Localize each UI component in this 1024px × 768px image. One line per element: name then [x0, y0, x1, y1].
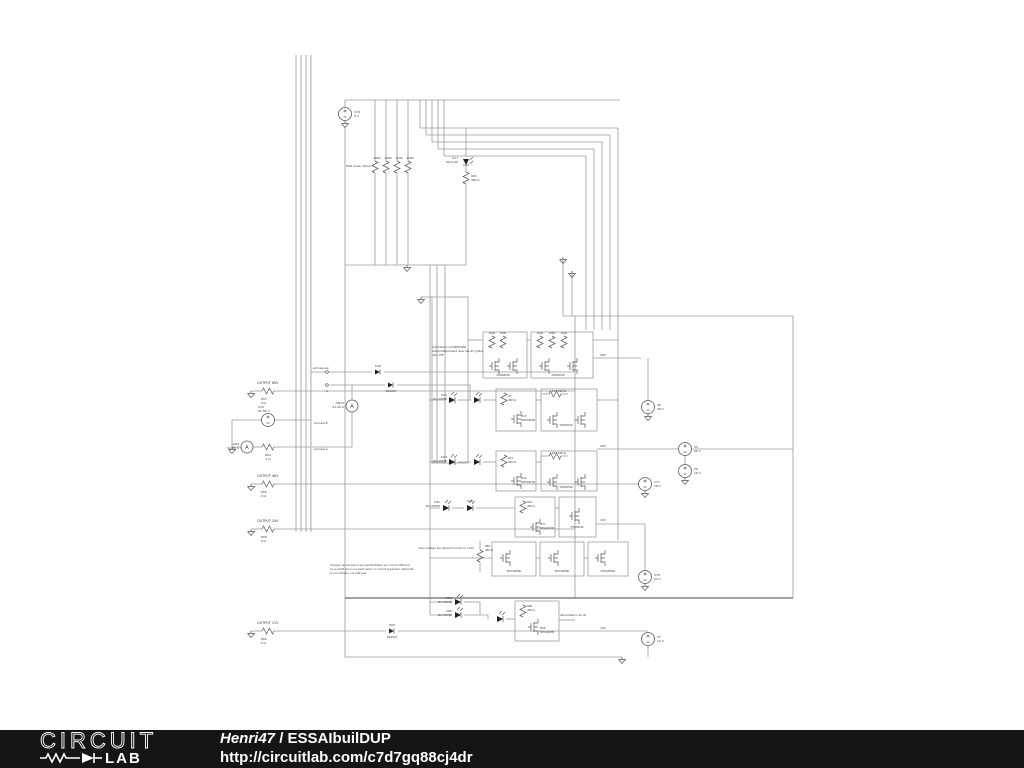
- terminal: [326, 384, 329, 387]
- schematic-label: 200Ω: [385, 156, 392, 160]
- project-author[interactable]: Henri47: [220, 730, 275, 747]
- schematic-label: R74 500 Ω: [552, 389, 566, 393]
- component-box: [496, 389, 536, 431]
- mosfet: [511, 411, 521, 427]
- schematic-label: arrivée A: [314, 447, 329, 451]
- source-value: 18 V: [654, 484, 662, 488]
- mosfet: [575, 412, 585, 428]
- resistor: [394, 161, 400, 173]
- schematic-label: NTR4003N: [521, 418, 535, 422]
- schematic-label: 0 Ω: [261, 401, 267, 405]
- led: [443, 505, 449, 511]
- schematic-label: STP16NF06L: [555, 570, 571, 573]
- schematic-label: 1N4007: [387, 635, 398, 639]
- ground-icon: [404, 265, 411, 272]
- led-arrows: [476, 454, 482, 458]
- led: [467, 505, 473, 511]
- schematic-label: OUTPUT 48V: [257, 474, 279, 478]
- schematic-label: 48V: [600, 444, 607, 448]
- ground-icon: [642, 491, 649, 498]
- schematic-label: NTR4003N: [540, 630, 554, 634]
- schematic-label: NTR4003N: [521, 480, 535, 484]
- schematic-label: 200Ω: [489, 332, 496, 335]
- schematic-label: OUTPUT 24V: [257, 519, 279, 523]
- schematic-label: 200Ω: [374, 156, 381, 160]
- ground-icon: [248, 631, 255, 638]
- resistor: [262, 628, 274, 634]
- schematic-label: ESD down 10mA: [346, 164, 372, 168]
- schematic-label: R15: [508, 456, 513, 460]
- schematic-label: R7: [508, 394, 512, 398]
- diode: [375, 370, 380, 375]
- logo-lab-text: LAB: [105, 750, 142, 767]
- schematic-label: 200Ω: [561, 332, 568, 335]
- ground-icon: [645, 414, 652, 421]
- led: [474, 459, 480, 465]
- schematic-label: 0 Ω: [261, 539, 267, 543]
- led: [474, 397, 480, 403]
- logo-diode-icon: [82, 753, 94, 763]
- led-arrows: [499, 611, 505, 615]
- schematic-label: 400 Ω: [527, 608, 535, 612]
- mosfet: [547, 412, 557, 428]
- source-value: 18 V: [694, 471, 702, 475]
- led-arrows: [451, 454, 457, 458]
- led: [497, 616, 503, 622]
- title-separator: /: [275, 730, 288, 747]
- mosfet: [548, 550, 558, 566]
- resistor: [405, 161, 411, 173]
- voltage-source: [679, 465, 692, 478]
- schematic-label: tous voltage les devant hormis le +12V: [419, 546, 474, 550]
- led-arrows: [476, 392, 482, 396]
- resistor: [262, 481, 274, 487]
- ground-icon: [248, 529, 255, 536]
- footer-bar: CIRCUIT LAB Henri47 / ESSAIbuilDUP http:…: [0, 730, 1024, 768]
- schematic-label: M30: [540, 626, 546, 630]
- led-arrows: [451, 392, 457, 396]
- schematic-label: OUTPUT 12V: [257, 621, 279, 625]
- diode: [388, 383, 393, 388]
- voltage-source: [642, 633, 655, 646]
- project-url: http://circuitlab.com/c7d7gq88cj4dr: [220, 749, 473, 768]
- schematic-label: LTL-307EE: [438, 613, 453, 617]
- schematic-label: 48V: [600, 353, 607, 357]
- schematic-label: arrivée B: [314, 421, 328, 425]
- schematic-label: LTL-307EE: [433, 397, 448, 401]
- schematic-label: LTL-307EE: [426, 504, 441, 508]
- schematic-label: 400 Ω: [527, 504, 535, 508]
- voltage-source: [262, 414, 275, 427]
- resistor: [372, 161, 378, 173]
- schematic-label: NTR4003N: [497, 374, 510, 377]
- mosfet: [569, 508, 579, 524]
- schematic-label: D60: [389, 623, 395, 627]
- resistor: [520, 501, 526, 513]
- resistor: [500, 336, 506, 348]
- schematic-label: 400 Ω: [508, 398, 516, 402]
- schematic-label: LTL-307EE: [433, 459, 448, 463]
- component-box: [515, 497, 555, 537]
- project-titles: Henri47 / ESSAIbuilDUP http://circuitlab…: [220, 730, 473, 768]
- schematic-label: D48: [467, 499, 473, 503]
- schematic-label: leds OFF: [432, 353, 444, 357]
- resistor: [561, 336, 567, 348]
- resistor: [537, 336, 543, 348]
- ammeter-value: 91.06 A: [332, 405, 345, 409]
- component-box: [515, 601, 559, 641]
- schematic-label: 0 Ω: [261, 641, 267, 645]
- mosfet: [530, 519, 540, 535]
- ammeter-symbol: A: [245, 445, 249, 451]
- mosfet: [528, 619, 538, 635]
- led-arrows: [470, 157, 473, 164]
- schematic-label: NTR4003N: [560, 424, 573, 427]
- schematic-label: 200Ω: [549, 332, 556, 335]
- schematic-label: 400 Ω: [485, 548, 493, 552]
- ground-icon: [682, 478, 689, 485]
- schematic-label: 12V: [600, 626, 607, 630]
- led: [463, 159, 469, 165]
- source-value: 48 V: [657, 407, 665, 411]
- schematic-label: D46: [375, 364, 381, 368]
- voltage-source: [679, 443, 692, 456]
- ground-icon: [342, 121, 349, 128]
- schematic-label: 0 Ω: [261, 494, 267, 498]
- resistor: [383, 161, 389, 173]
- schematic-label: NTR4003N: [552, 374, 565, 377]
- schematic-label: LTL-307EE: [438, 600, 453, 604]
- schematic-label: M14: [521, 476, 527, 480]
- schematic-label: 200Ω: [407, 156, 414, 160]
- ground-icon: [619, 657, 626, 664]
- led: [449, 397, 455, 403]
- schematic-label: STP16NF06L: [601, 570, 617, 573]
- voltage-source: [639, 571, 652, 584]
- schematic-label: 200Ω: [500, 332, 507, 335]
- schematic-label: R75 500 Ω: [552, 451, 566, 455]
- source-value: 8 V: [354, 114, 360, 118]
- schematic-label: arrivée sw: [313, 366, 329, 370]
- schematic-label: black GP: [446, 160, 458, 164]
- schematic-label: 200Ω: [396, 156, 403, 160]
- component-box: [483, 332, 527, 378]
- schematic-label: 1N4007: [386, 389, 397, 393]
- circuitlab-logo[interactable]: CIRCUIT LAB: [38, 731, 198, 767]
- schematic-label: 24V: [600, 518, 607, 522]
- schematic-label: 400 Ω: [471, 178, 480, 182]
- schematic-label: 200Ω: [537, 332, 544, 335]
- ground-icon: [248, 484, 255, 491]
- schematic-label: a: [326, 389, 328, 393]
- schematic-label: R68: [527, 604, 532, 608]
- resistor: [463, 172, 469, 184]
- schematic-label: NTR4003N: [540, 526, 554, 530]
- schematic-label: STP16NF06L: [507, 570, 523, 573]
- schematic-label: M17: [540, 522, 546, 526]
- schematic-label: NTR4003N: [571, 526, 584, 529]
- resistor: [520, 605, 526, 617]
- resistor: [501, 455, 507, 467]
- mosfet: [500, 550, 510, 566]
- resistor: [501, 393, 507, 405]
- terminal: [326, 371, 329, 374]
- resistor: [549, 336, 555, 348]
- resistor: [262, 444, 274, 450]
- voltage-source: [639, 478, 652, 491]
- mosfet: [595, 550, 605, 566]
- led: [455, 599, 461, 605]
- led-arrows: [457, 607, 463, 611]
- diode: [389, 629, 394, 634]
- project-title: Henri47 / ESSAIbuilDUP: [220, 730, 473, 749]
- ground-icon: [642, 584, 649, 591]
- source-value: 66 V: [694, 449, 702, 453]
- project-name[interactable]: ESSAIbuilDUP: [288, 730, 391, 747]
- schematic-label: alimentation 2k ok: [560, 613, 587, 617]
- schematic-label: R16: [527, 500, 532, 504]
- schematic-canvas: V188 VV1691.86 VV848 VV566 VV618 VV7718 …: [0, 0, 1024, 730]
- schematic-label: NTR4003N: [560, 486, 573, 489]
- schematic-svg: V188 VV1691.86 VV848 VV566 VV618 VV7718 …: [0, 0, 1024, 730]
- schematic-label: 400 Ω: [508, 460, 516, 464]
- mosfet: [547, 474, 557, 490]
- ammeter-value: 91.86 A: [227, 446, 240, 450]
- led: [449, 459, 455, 465]
- voltage-source: [642, 401, 655, 414]
- mosfet: [575, 474, 585, 490]
- led: [455, 612, 461, 618]
- resistor: [262, 388, 274, 394]
- resistor: [477, 550, 483, 562]
- voltage-source: [339, 108, 352, 121]
- schematic-label: si un inférieur ne l'est pas: [330, 571, 367, 575]
- ammeter-symbol: A: [350, 404, 354, 410]
- schematic-label: OUTPUT 66V: [257, 381, 279, 385]
- resistor: [489, 336, 495, 348]
- source-value: 24 V: [654, 577, 662, 581]
- source-value: 91.86 V: [258, 409, 271, 413]
- source-value: 12 V: [657, 639, 665, 643]
- schematic-label: M13: [521, 414, 527, 418]
- component-box: [541, 451, 597, 491]
- resistor: [262, 526, 274, 532]
- schematic-label: R60: [485, 544, 490, 548]
- ground-icon: [248, 391, 255, 398]
- logo-resistor-icon: [40, 754, 80, 762]
- schematic-label: 1 Ω: [266, 457, 272, 461]
- component-box: [496, 451, 536, 491]
- ground-icon: [418, 297, 425, 304]
- component-box: [559, 497, 596, 537]
- led-arrows: [445, 500, 451, 504]
- mosfet: [511, 473, 521, 489]
